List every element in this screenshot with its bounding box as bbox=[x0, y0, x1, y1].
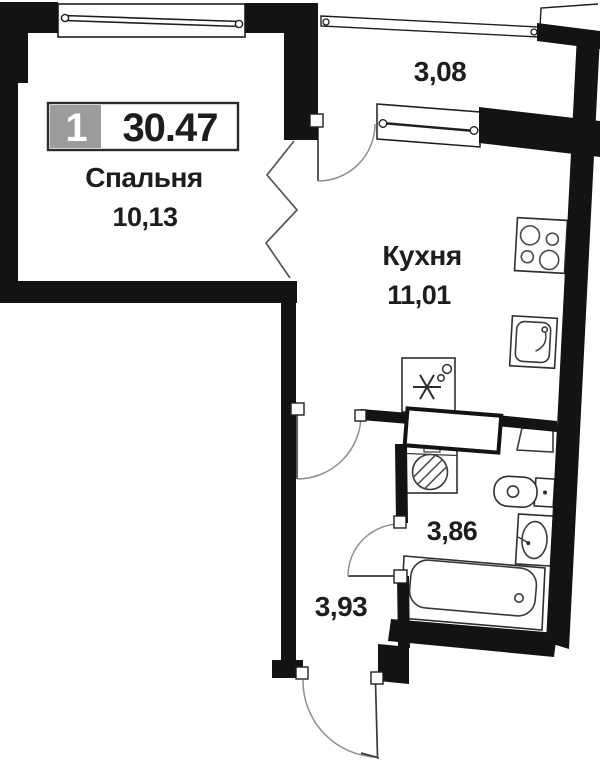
wall-bathroom-left-upper bbox=[395, 444, 408, 523]
wall-break-zigzag-symbol bbox=[266, 141, 297, 278]
wall-bedroom-bottom bbox=[0, 281, 297, 303]
bathroom-sink-icon bbox=[516, 514, 554, 566]
bedroom-name-label: Спальня bbox=[85, 162, 202, 193]
bedroom-area-label: 10,13 bbox=[112, 202, 178, 232]
stove-icon bbox=[515, 218, 568, 274]
bathtub-icon bbox=[401, 556, 545, 630]
kitchen-door-swing-symbol bbox=[297, 415, 361, 479]
entrance-door-swing-symbol bbox=[303, 680, 379, 758]
balcony-door-swing-symbol bbox=[318, 124, 375, 181]
floor-plan: 1 30.47 Спальня 10,13 3,08 Кухня 11,01 3… bbox=[0, 0, 600, 761]
bedroom-window-symbol bbox=[58, 4, 245, 37]
unit-badge-rooms-count: 1 bbox=[65, 106, 87, 150]
bathroom-fixtures bbox=[401, 428, 555, 630]
balcony-kitchen-window-symbol bbox=[377, 104, 480, 147]
washing-machine-icon bbox=[406, 445, 457, 493]
kitchen-area-label: 11,01 bbox=[387, 280, 451, 310]
kitchen-name-label: Кухня bbox=[382, 240, 461, 271]
balcony-area-label: 3,08 bbox=[414, 56, 467, 87]
hallway-area-label: 3,93 bbox=[315, 591, 368, 622]
toilet-icon bbox=[493, 475, 555, 509]
bathroom-door-swing-symbol bbox=[348, 524, 400, 576]
fridge-icon bbox=[402, 358, 455, 412]
wall-hallway-left bbox=[281, 303, 296, 662]
floor-plan-drawing: 1 30.47 Спальня 10,13 3,08 Кухня 11,01 3… bbox=[0, 0, 600, 761]
unit-badge: 1 30.47 bbox=[48, 103, 238, 150]
unit-badge-total-area: 30.47 bbox=[122, 106, 217, 150]
bathroom-area-label: 3,86 bbox=[427, 516, 478, 546]
kitchen-sink-icon bbox=[510, 316, 558, 368]
cabinet-icon bbox=[517, 428, 553, 452]
wall-top-middle bbox=[245, 3, 318, 140]
sliding-door-symbol bbox=[405, 408, 502, 452]
